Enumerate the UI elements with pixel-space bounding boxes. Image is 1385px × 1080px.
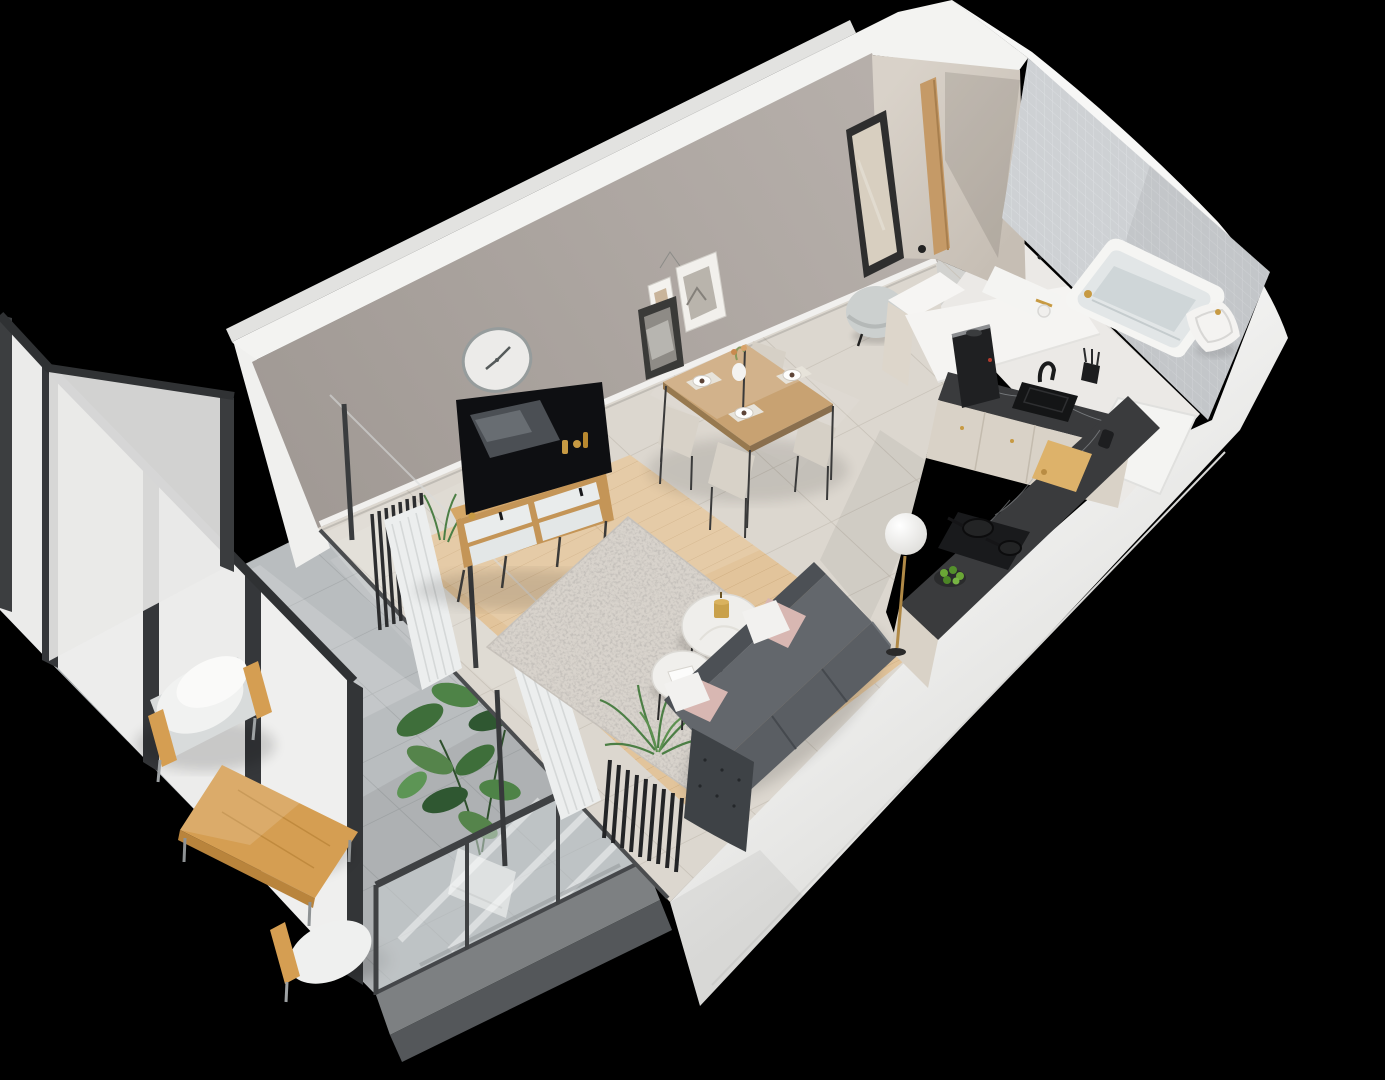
gold-tub-faucet: [1084, 290, 1092, 298]
apartment-render-canvas: [0, 0, 1385, 1080]
lamp-globe: [885, 513, 927, 555]
gold-flush-button: [1215, 309, 1221, 315]
door-stopper: [918, 245, 926, 253]
gold-deco-star: [469, 513, 476, 520]
floorplan-3d-render: [0, 0, 1385, 1080]
